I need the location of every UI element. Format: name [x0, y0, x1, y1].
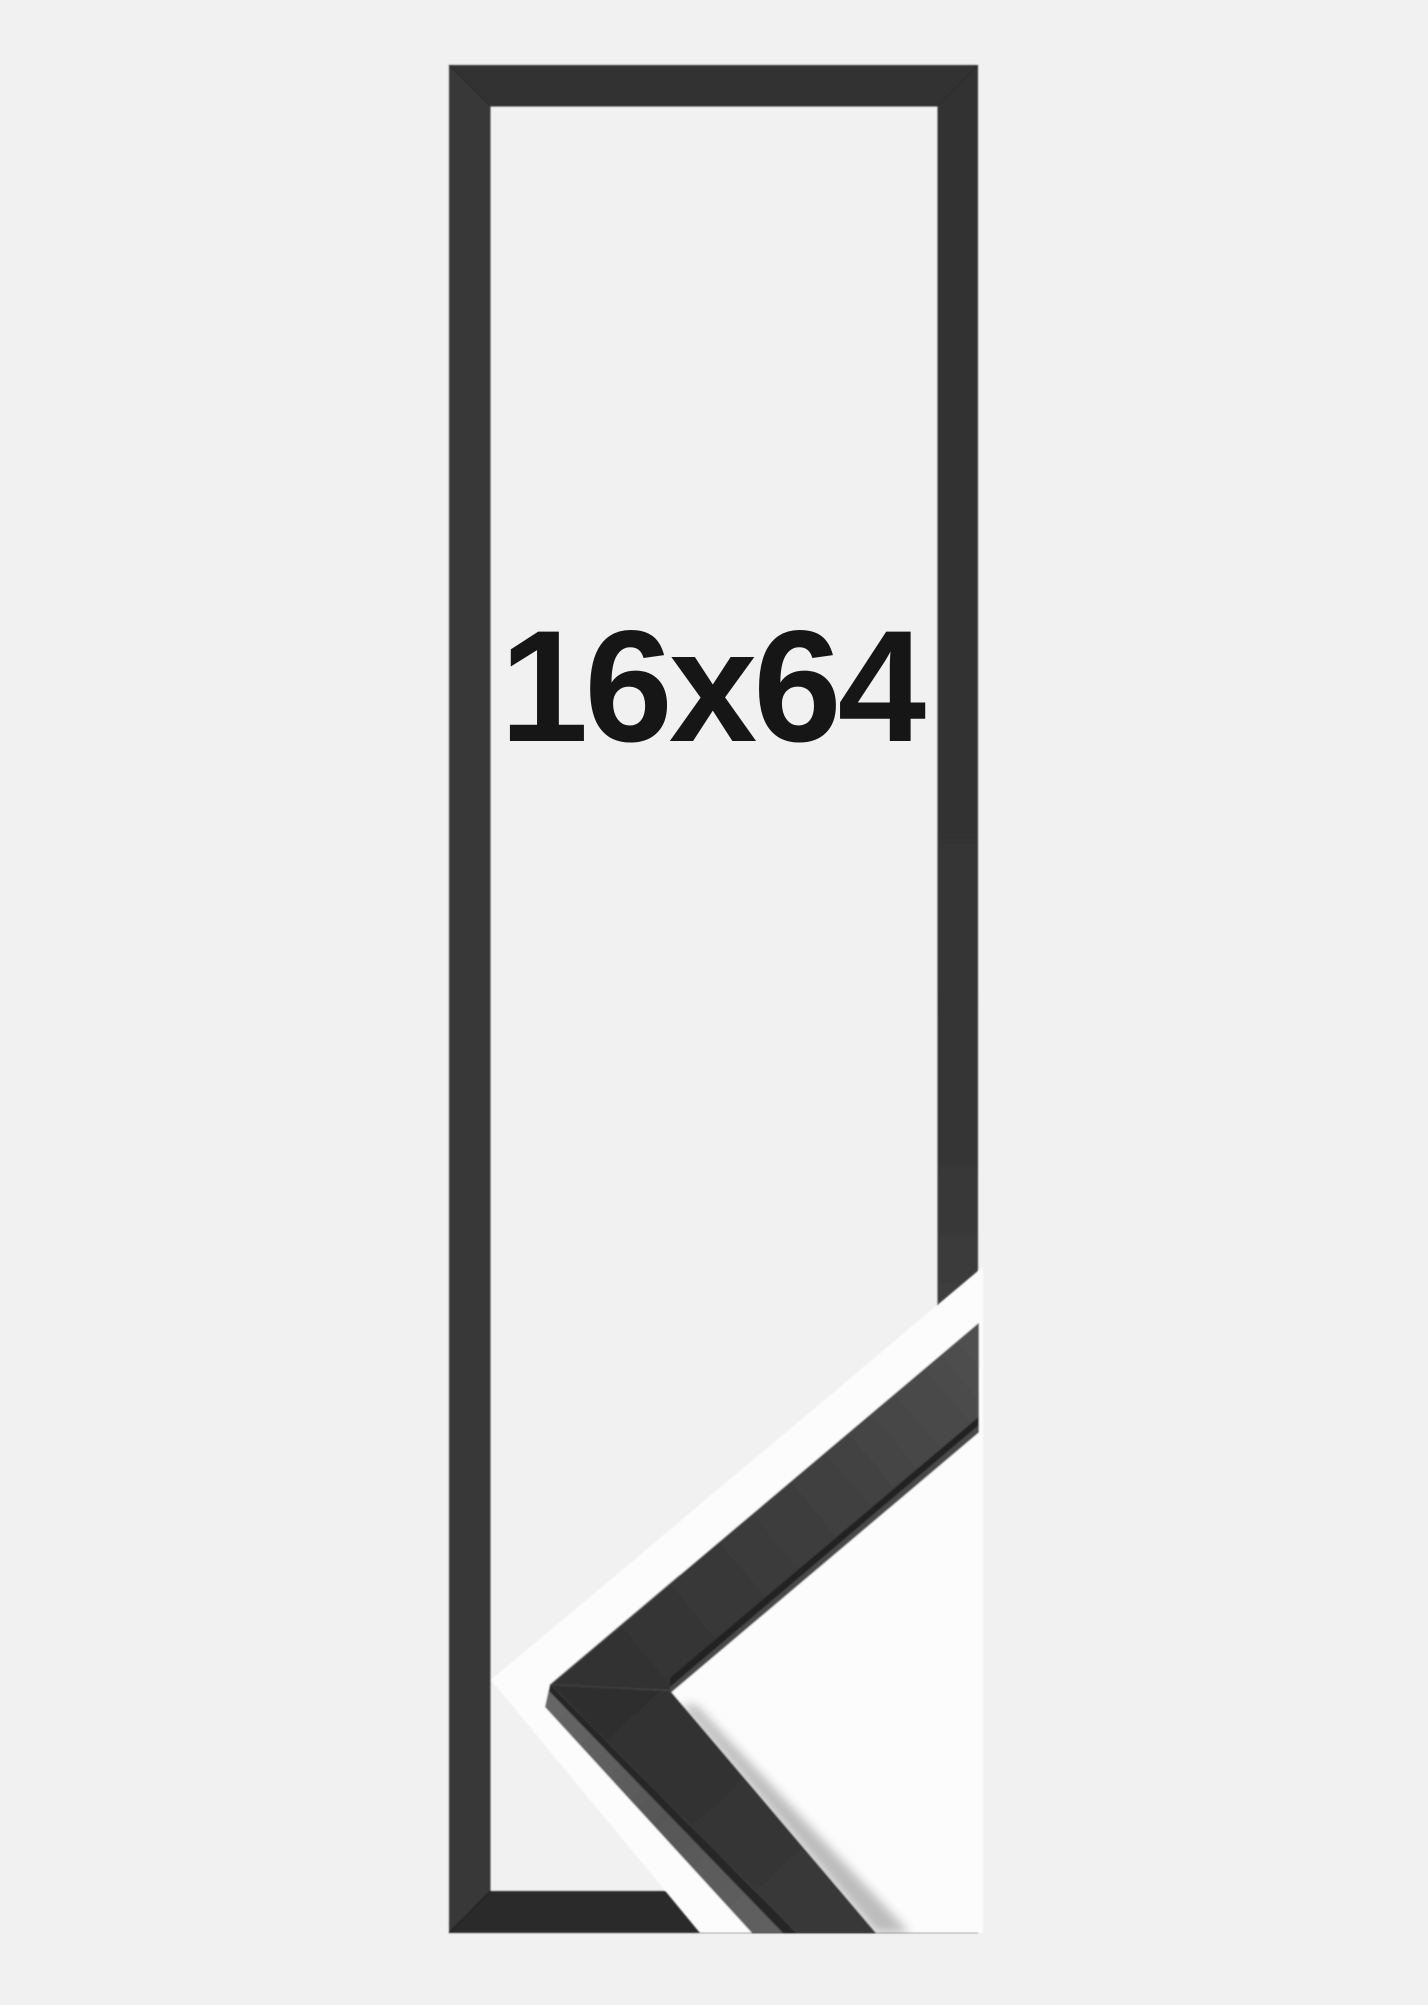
svg-text:16x64: 16x64 [500, 597, 926, 775]
